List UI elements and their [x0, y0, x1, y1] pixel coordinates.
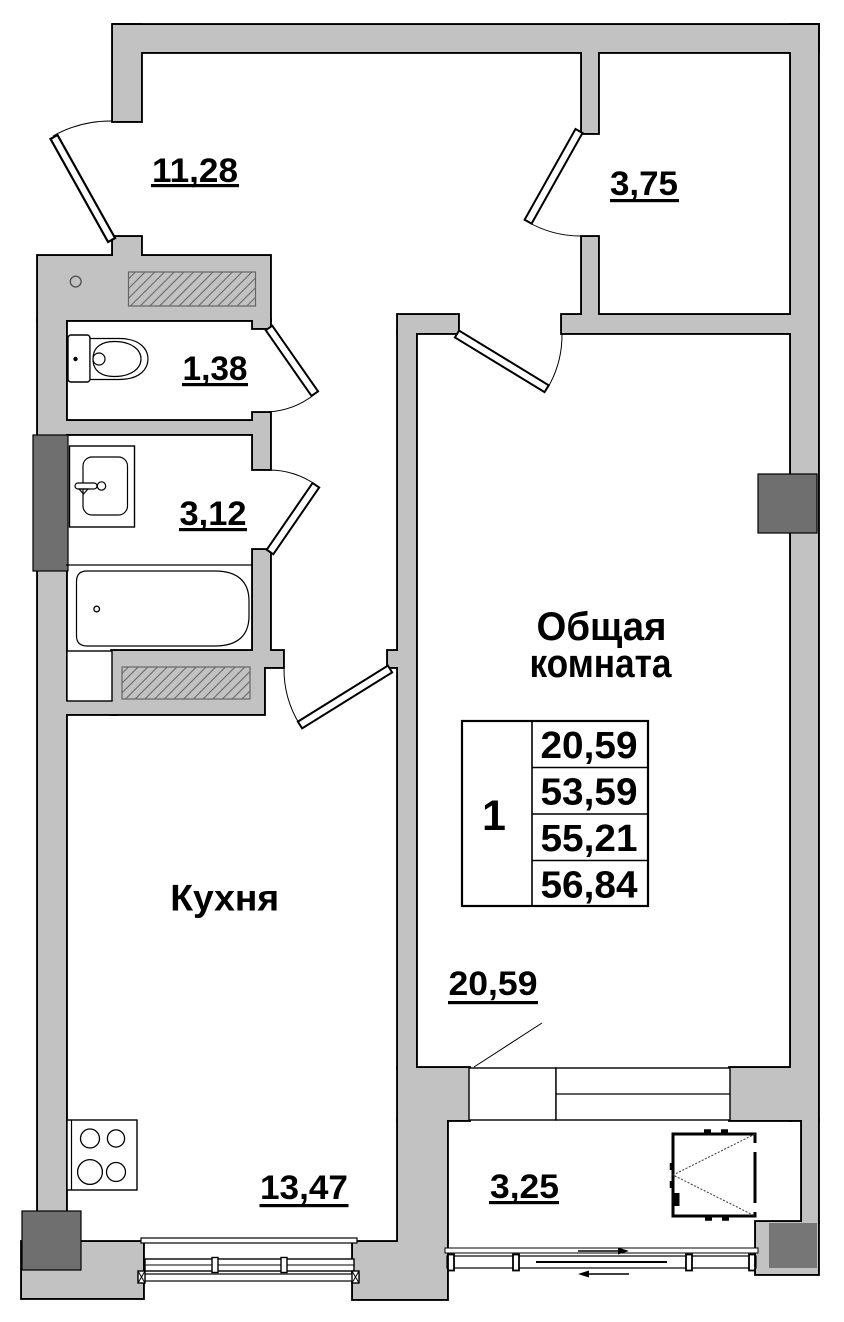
svg-text:55,21: 55,21: [541, 818, 638, 860]
svg-text:1,38: 1,38: [183, 350, 248, 388]
svg-text:56,84: 56,84: [541, 865, 638, 907]
svg-text:3,75: 3,75: [610, 165, 678, 203]
svg-text:20,59: 20,59: [541, 725, 638, 767]
svg-text:3,12: 3,12: [180, 495, 247, 533]
svg-text:1: 1: [482, 792, 506, 840]
svg-text:53,59: 53,59: [541, 772, 638, 814]
svg-text:комната: комната: [530, 642, 673, 686]
svg-text:Кухня: Кухня: [170, 877, 279, 919]
svg-text:13,47: 13,47: [260, 1169, 348, 1207]
svg-text:20,59: 20,59: [449, 965, 538, 1003]
svg-text:3,25: 3,25: [490, 1168, 559, 1206]
